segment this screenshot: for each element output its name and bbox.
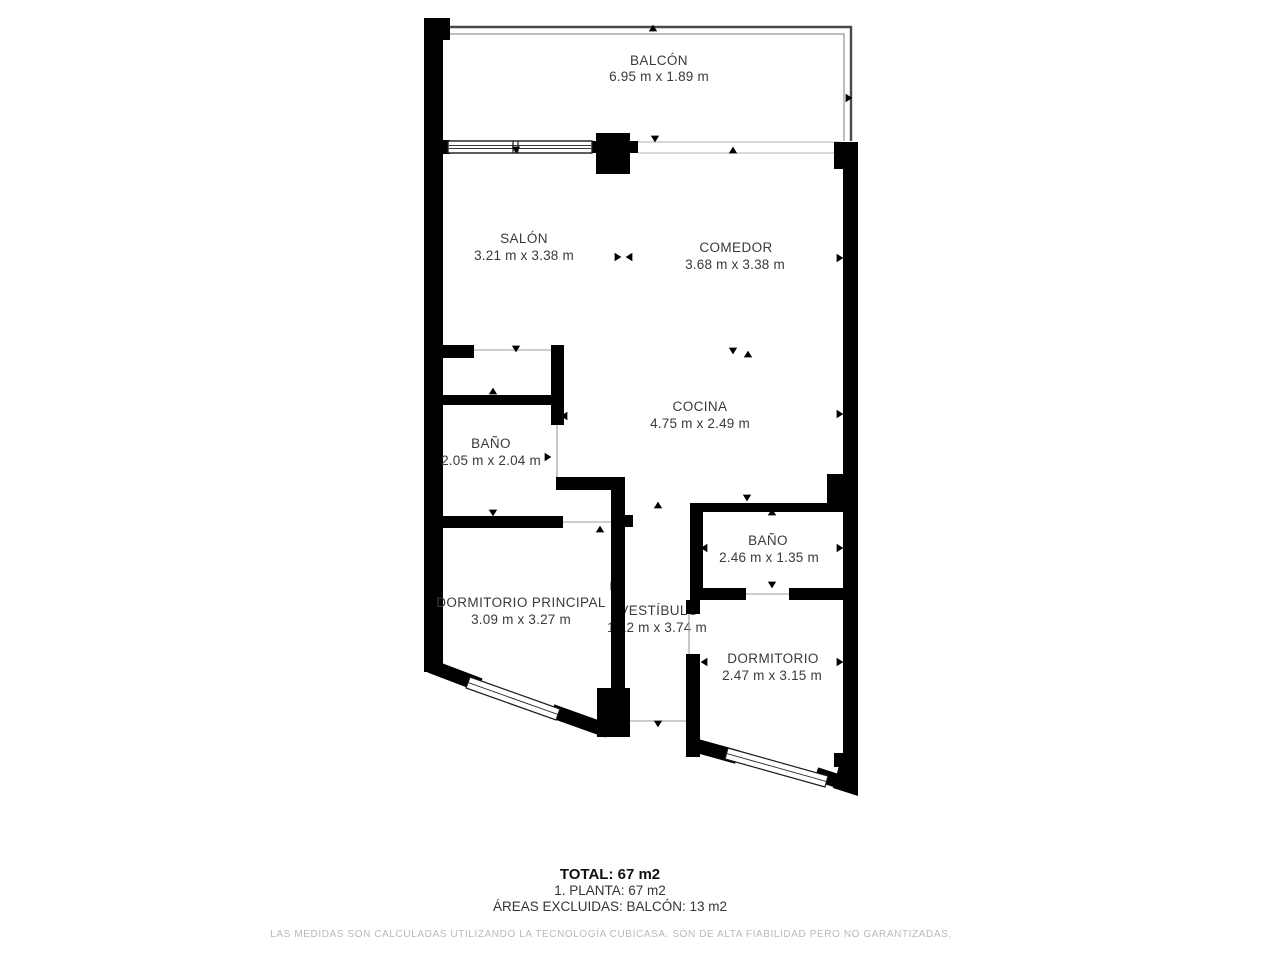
direction-marker <box>654 721 662 728</box>
wall-corner <box>833 762 858 796</box>
room-label-balcon: BALCÓN 6.95 m x 1.89 m <box>609 53 709 84</box>
room-label-salon: SALÓN 3.21 m x 3.38 m <box>474 231 574 263</box>
direction-marker <box>729 147 737 154</box>
dormitorio-principal-dims: 3.09 m x 3.27 m <box>471 612 571 627</box>
dormitorio-name: DORMITORIO <box>727 651 819 666</box>
direction-marker <box>651 136 659 143</box>
total-area: TOTAL: 67 m2 <box>0 866 1220 883</box>
direction-marker <box>837 658 844 666</box>
room-label-dormitorio: DORMITORIO 2.47 m x 3.15 m <box>722 651 822 683</box>
bano1-name: BAÑO <box>471 436 511 451</box>
room-label-bano1: BAÑO 2.05 m x 2.04 m <box>441 436 541 468</box>
balcon-dims: 6.95 m x 1.89 m <box>609 69 709 84</box>
wall-segment <box>551 345 564 425</box>
direction-marker <box>489 510 497 517</box>
direction-marker <box>743 495 751 502</box>
direction-marker <box>545 453 552 461</box>
wall-segment <box>424 395 555 405</box>
master-bedroom-window <box>466 677 560 720</box>
wall-segment <box>424 345 474 358</box>
direction-marker <box>729 348 737 355</box>
floor-plan-svg: VESTÍBULO 1.12 m x 3.74 m <box>0 0 1280 960</box>
direction-marker <box>615 253 622 261</box>
room-label-cocina: COCINA 4.75 m x 2.49 m <box>650 399 750 431</box>
direction-marker <box>837 410 844 418</box>
wall-segment <box>789 588 845 600</box>
balcony-open-boundary <box>638 142 841 153</box>
bedroom-window <box>725 748 828 787</box>
wall-segment <box>630 141 638 153</box>
room-label-bano2: BAÑO 2.46 m x 1.35 m <box>719 533 819 565</box>
room-label-dormitorio-principal: DORMITORIO PRINCIPAL 3.09 m x 3.27 m <box>436 595 606 627</box>
direction-marker <box>837 544 844 552</box>
wall-segment <box>443 18 450 40</box>
comedor-name: COMEDOR <box>699 240 772 255</box>
dormitorio-principal-name: DORMITORIO PRINCIPAL <box>436 595 606 610</box>
wall-segment <box>625 515 633 527</box>
balcony-railing <box>443 27 851 141</box>
balcon-name: BALCÓN <box>630 53 688 68</box>
direction-marker <box>744 351 752 358</box>
cocina-dims: 4.75 m x 2.49 m <box>650 416 750 431</box>
dormitorio-dims: 2.47 m x 3.15 m <box>722 668 822 683</box>
wall-segment <box>827 474 843 504</box>
bano1-dims: 2.05 m x 2.04 m <box>441 453 541 468</box>
salon-window <box>448 141 592 153</box>
measurement-disclaimer: LAS MEDIDAS SON CALCULADAS UTILIZANDO LA… <box>0 929 1222 940</box>
room-label-comedor: COMEDOR 3.68 m x 3.38 m <box>685 240 785 272</box>
wall-segment <box>690 588 746 600</box>
floorplan-page: VESTÍBULO 1.12 m x 3.74 m <box>0 0 1280 960</box>
direction-marker <box>512 346 520 353</box>
wall-segment <box>834 142 843 169</box>
direction-marker <box>768 582 776 589</box>
salon-dims: 3.21 m x 3.38 m <box>474 248 574 263</box>
cocina-name: COCINA <box>673 399 728 414</box>
salon-name: SALÓN <box>500 231 548 246</box>
wall-segment <box>424 516 563 528</box>
excluded-areas: ÁREAS EXCLUIDAS: BALCÓN: 13 m2 <box>0 899 1220 915</box>
area-summary: TOTAL: 67 m2 1. PLANTA: 67 m2 ÁREAS EXCL… <box>0 866 1220 915</box>
wall-segment <box>686 600 700 614</box>
floor-area: 1. PLANTA: 67 m2 <box>0 883 1220 899</box>
direction-marker <box>654 502 662 509</box>
wall-pillar <box>596 133 630 174</box>
direction-marker <box>596 526 604 533</box>
wall-segment <box>611 477 625 723</box>
direction-marker <box>489 388 497 395</box>
wall-segment <box>690 503 703 600</box>
wall-segment <box>843 142 858 788</box>
wall-segment <box>690 503 845 512</box>
bano2-dims: 2.46 m x 1.35 m <box>719 550 819 565</box>
comedor-dims: 3.68 m x 3.38 m <box>685 257 785 272</box>
direction-marker <box>626 253 633 261</box>
bano2-name: BAÑO <box>748 533 788 548</box>
direction-marker <box>701 658 708 666</box>
direction-marker <box>837 254 844 262</box>
